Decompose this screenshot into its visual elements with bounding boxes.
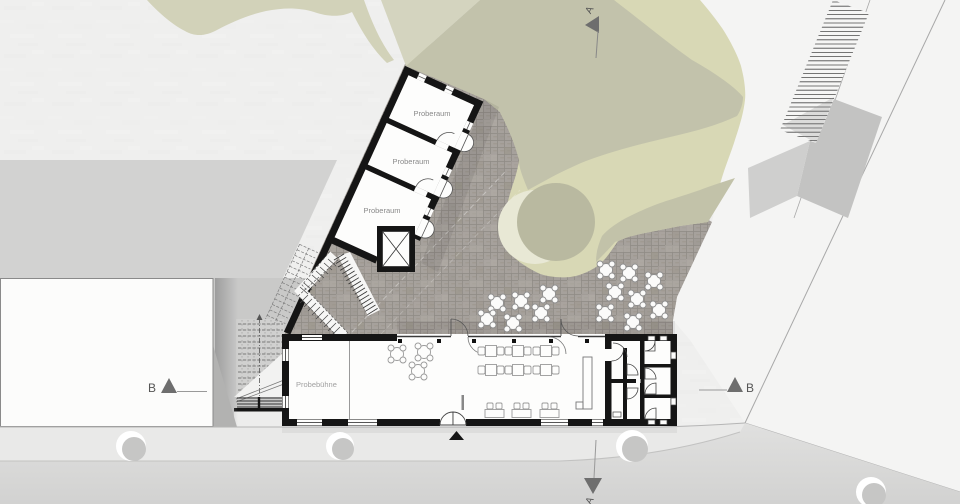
svg-text:B: B bbox=[148, 381, 156, 395]
svg-text:Probebühne: Probebühne bbox=[296, 380, 337, 389]
svg-text:Proberaum: Proberaum bbox=[413, 109, 450, 118]
svg-text:Proberaum: Proberaum bbox=[363, 206, 400, 215]
svg-text:B: B bbox=[746, 381, 754, 395]
svg-text:Proberaum: Proberaum bbox=[392, 157, 429, 166]
